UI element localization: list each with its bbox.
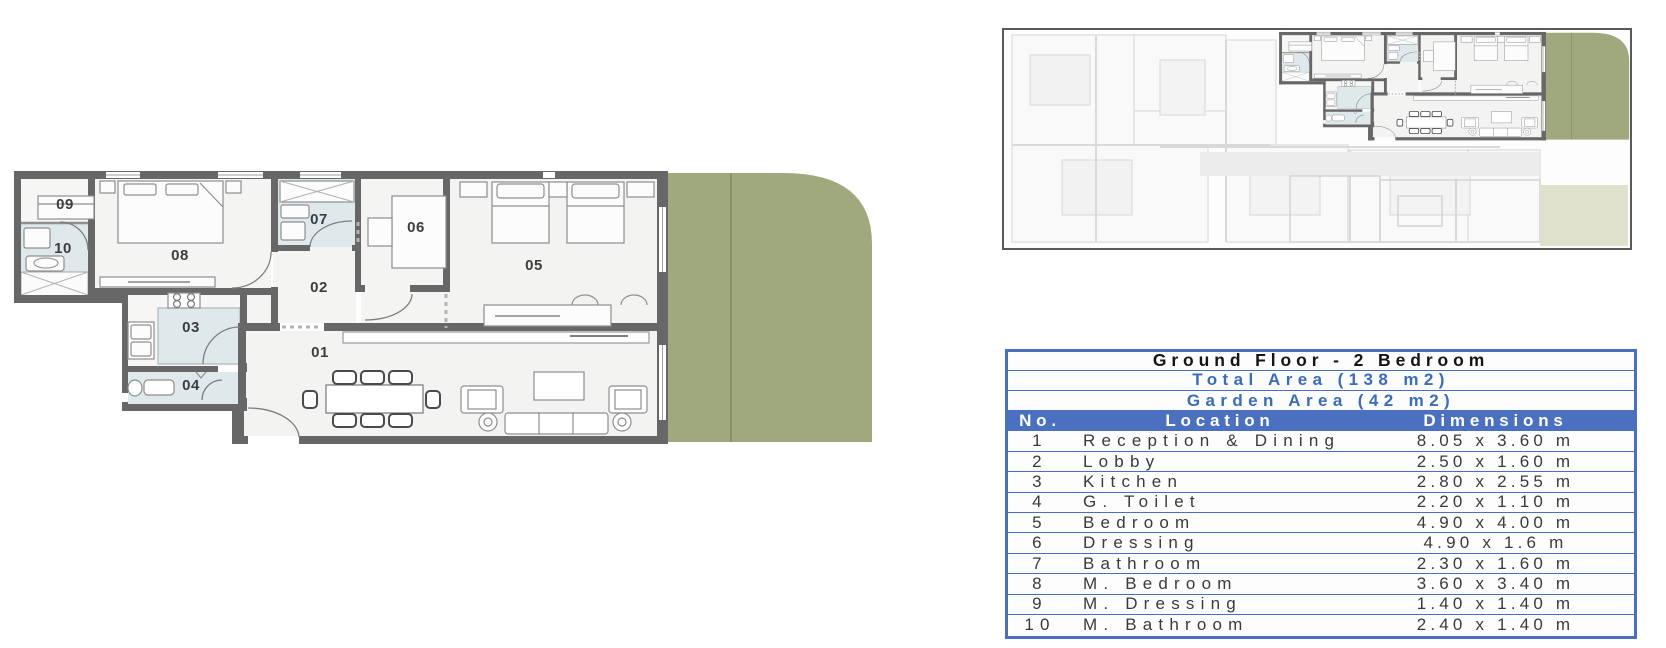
svg-text:06: 06	[407, 219, 425, 236]
svg-text:08: 08	[171, 247, 189, 264]
svg-text:02: 02	[310, 279, 328, 296]
svg-text:04: 04	[182, 377, 200, 394]
svg-text:09: 09	[56, 196, 74, 213]
svg-text:05: 05	[525, 257, 543, 274]
svg-text:03: 03	[182, 319, 200, 336]
svg-text:10: 10	[54, 240, 72, 257]
svg-text:01: 01	[311, 344, 329, 361]
svg-text:07: 07	[310, 211, 328, 228]
